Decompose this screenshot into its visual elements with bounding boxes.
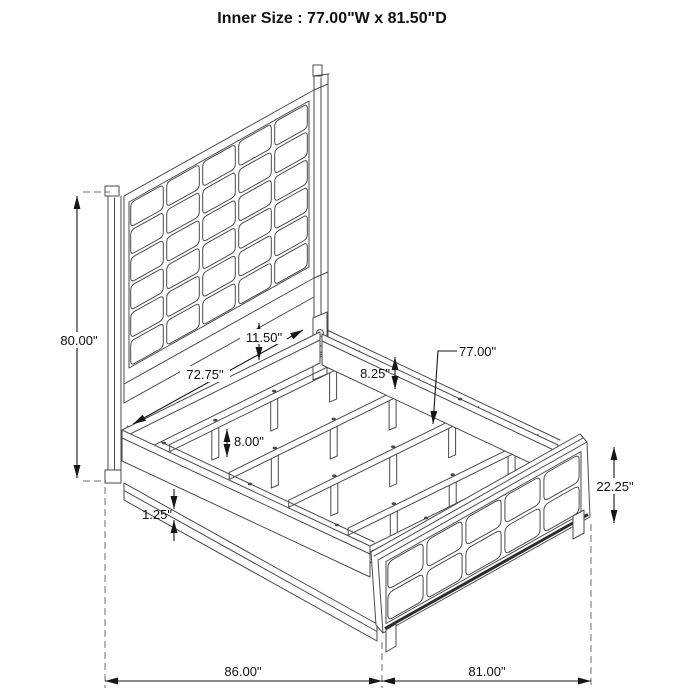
dim-label-slat-length: 77.00" bbox=[459, 344, 497, 359]
slat-leg bbox=[331, 483, 338, 516]
screw-hole bbox=[273, 447, 277, 450]
dim-label-base-rail-lip: 1.25" bbox=[142, 507, 172, 522]
screw-hole bbox=[213, 419, 217, 422]
dim-label-side-rail-height: 8.25" bbox=[360, 366, 390, 381]
dim-label-headboard-to-rail-gap: 11.50" bbox=[246, 330, 283, 345]
slat-leg bbox=[389, 397, 396, 430]
diagram-page: Inner Size : 77.00"W x 81.50"D bbox=[0, 0, 700, 700]
dim-footboard-height: 22.25" bbox=[591, 447, 639, 523]
headboard-left-post bbox=[105, 186, 121, 483]
bed-dimension-diagram: Inner Size : 77.00"W x 81.50"D bbox=[0, 0, 700, 700]
slat-leg bbox=[330, 426, 337, 459]
slat-leg bbox=[330, 369, 337, 402]
screw-hole bbox=[391, 445, 395, 448]
slat-leg bbox=[212, 427, 219, 460]
slat-leg bbox=[449, 425, 456, 458]
screw-hole bbox=[248, 483, 252, 486]
dim-label-headboard-height: 80.00" bbox=[60, 333, 98, 348]
right-side-rail bbox=[322, 330, 560, 476]
dim-slat-leg-height: 8.00" bbox=[227, 429, 264, 457]
headboard-right-post bbox=[313, 65, 329, 380]
screw-hole bbox=[458, 398, 462, 401]
screw-hole bbox=[332, 474, 336, 477]
footboard bbox=[371, 434, 590, 652]
dim-label-slat-support-span: 72.75" bbox=[186, 367, 224, 382]
dim-label-slat-leg-height: 8.00" bbox=[234, 434, 264, 449]
dim-label-overall-width: 81.00" bbox=[468, 664, 506, 679]
screw-hole bbox=[272, 390, 276, 393]
dim-label-footboard-height: 22.25" bbox=[596, 479, 634, 494]
screw-hole bbox=[162, 442, 166, 445]
dim-headboard-height: 80.00" bbox=[55, 192, 110, 481]
screw-hole bbox=[332, 418, 336, 421]
screw-hole bbox=[392, 502, 396, 505]
dim-label-overall-length: 86.00" bbox=[224, 664, 262, 679]
slat-leg bbox=[271, 398, 278, 431]
screw-hole bbox=[424, 517, 428, 520]
screw-hole bbox=[451, 473, 455, 476]
diagram-title: Inner Size : 77.00"W x 81.50"D bbox=[217, 10, 447, 27]
slat-leg bbox=[271, 455, 278, 488]
slat-leg bbox=[390, 454, 397, 487]
screw-hole bbox=[335, 524, 339, 527]
